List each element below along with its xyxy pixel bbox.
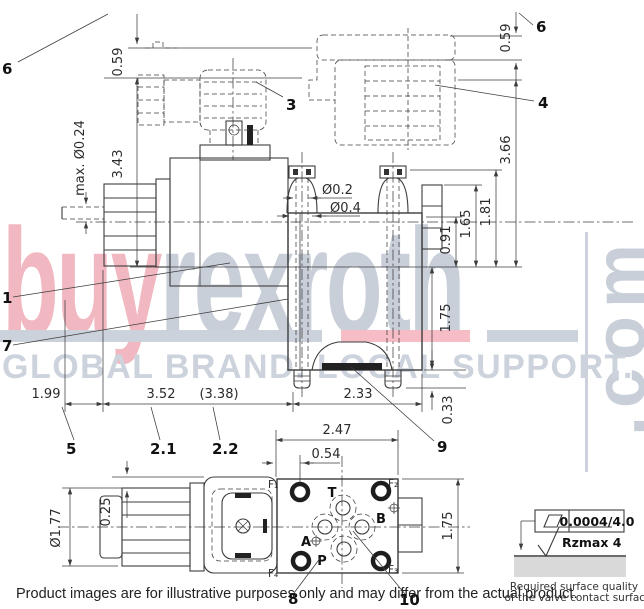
roughness-value: Rzmax 4 [562, 535, 622, 550]
label-port-p: P [317, 554, 327, 569]
label-port-t: T [328, 486, 337, 501]
dim-175-side-value: 1.75 [439, 304, 454, 333]
dim-091-value: 0.91 [439, 226, 454, 255]
item-9: 9 [437, 438, 447, 456]
leader-item6-left [18, 14, 108, 62]
dim-181-value: 1.81 [479, 198, 494, 227]
dim-199-value: 1.99 [32, 387, 61, 402]
side-view: max. Ø0.24 [2, 12, 636, 458]
dim-054-value: 0.54 [312, 447, 341, 462]
label-f1: F₁ [268, 479, 278, 491]
mounting-screw-left [287, 152, 317, 400]
label-port-b: B [376, 512, 386, 527]
dim-352-value: 3.52 [147, 387, 176, 402]
leader-item21 [151, 407, 160, 440]
dim-override-pin: max. Ø0.24 [73, 120, 88, 196]
dim-clearance-right-value: 0.59 [499, 24, 514, 53]
dim-175-top-value: 1.75 [441, 512, 456, 541]
item-1: 1 [2, 289, 12, 307]
connector-variant-small [138, 42, 266, 145]
label-port-a: A [301, 535, 311, 550]
item-2-2: 2.2 [212, 440, 239, 458]
item-4: 4 [538, 94, 548, 112]
override-pin [62, 192, 104, 234]
leader-item7 [13, 299, 288, 345]
mounting-hole-f4 [293, 553, 309, 569]
label-f3: F₃ [388, 564, 398, 576]
item-5: 5 [66, 440, 76, 458]
top-solenoid [100, 477, 277, 573]
dim-033-value: 0.33 [441, 396, 456, 425]
top-view: F₁ F₂ F₃ F₄ T A B P [49, 423, 470, 609]
leader-item6-right [519, 13, 533, 25]
leader-item5 [62, 407, 74, 440]
port-p [331, 536, 357, 562]
valve-dimensional-drawing: max. Ø0.24 [0, 0, 644, 609]
mounting-hole-f3 [373, 553, 389, 569]
coil-terminal-pin [247, 125, 253, 145]
leader-item10 [353, 531, 405, 594]
mounting-hole-f1 [292, 484, 308, 500]
label-f4: F₄ [268, 568, 278, 580]
dim-233-value: 2.33 [344, 387, 373, 402]
item-2-1: 2.1 [150, 440, 177, 458]
dim-338-value: (3.38) [199, 387, 238, 402]
leader-item1 [13, 263, 230, 297]
dim-177-value: Ø1.77 [49, 508, 64, 547]
mounting-screw-right [378, 152, 408, 400]
connector-variant-large [309, 28, 455, 150]
surface-quality-note: 0.0004/4.0 Rzmax 4 Required surface qual… [504, 510, 644, 604]
leader-item3 [256, 82, 283, 97]
item-6-left: 6 [2, 60, 12, 78]
dim-clearance-left-value: 0.59 [111, 48, 126, 77]
dim-165-value: 1.65 [459, 210, 474, 239]
solenoid-coil [170, 58, 288, 286]
item-7: 7 [2, 337, 12, 355]
dim-bore-small-value: Ø0.2 [322, 183, 353, 198]
dim-bore-large-value: Ø0.4 [330, 201, 361, 216]
surface-hatch [514, 557, 626, 577]
dim-025-value: 0.25 [99, 498, 114, 527]
dim-247-value: 2.47 [323, 423, 352, 438]
surface-caption-2: of the valve contact surface [504, 592, 644, 604]
item-3: 3 [286, 96, 296, 114]
leader-item4 [435, 85, 534, 101]
label-f2: F₂ [388, 478, 398, 490]
dim-clearance-left [104, 14, 312, 78]
locating-pin-hole-left [310, 535, 322, 547]
dim-366-value: 3.66 [499, 136, 514, 165]
mounting-hole-f2 [373, 483, 389, 499]
leader-item22 [213, 407, 220, 440]
top-valve-housing [277, 479, 422, 573]
item-10: 10 [399, 591, 420, 609]
item-6-right: 6 [536, 18, 546, 36]
item-8: 8 [288, 590, 298, 608]
dim-solenoid-height-value: 3.43 [111, 150, 126, 179]
nameplate [312, 342, 392, 370]
drawing-page: buyrexroth .com GLOBAL BRAND. LOCAL SUPP… [0, 0, 644, 609]
